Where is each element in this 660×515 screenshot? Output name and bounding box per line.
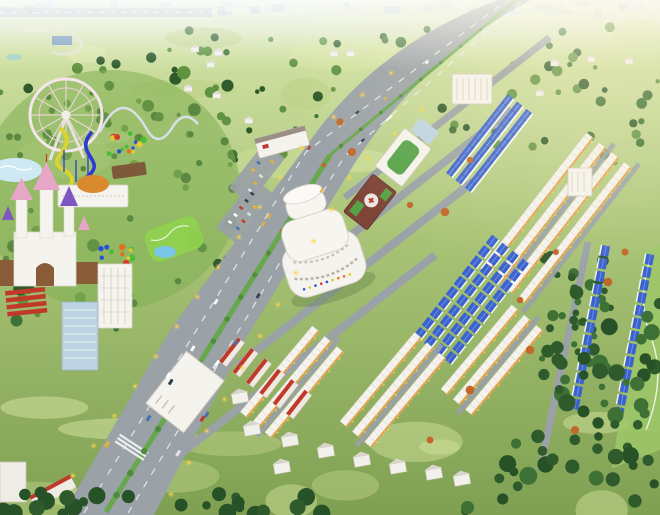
carousel-part: [129, 248, 133, 252]
forest-tree: [640, 408, 650, 418]
forest-tree: [461, 501, 474, 514]
forest-tree: [606, 472, 620, 486]
tree: [569, 316, 578, 325]
forest-tree: [650, 479, 659, 488]
forest-tree: [547, 453, 559, 465]
forest-tree: [509, 467, 518, 476]
median-tree: [266, 250, 271, 255]
forest-tree: [592, 363, 608, 379]
play-equipment: [140, 137, 146, 143]
street-light: [134, 385, 136, 387]
street-light: [170, 493, 172, 495]
forest-tree: [601, 318, 618, 335]
castle-tower: [16, 198, 27, 238]
tree: [560, 375, 570, 385]
forest-tree: [594, 432, 603, 441]
median-tree: [238, 294, 243, 299]
tree: [570, 286, 584, 300]
street-light: [279, 176, 281, 178]
wheel-hub: [62, 111, 71, 120]
field-patch: [312, 470, 379, 500]
median-tree: [127, 470, 134, 477]
play-equipment: [134, 141, 137, 144]
street-light: [206, 430, 208, 432]
median-tree: [252, 272, 257, 277]
street-light: [241, 367, 243, 369]
street-light: [259, 335, 261, 337]
tent-wall: [245, 119, 253, 124]
street-light: [113, 415, 115, 417]
street-light: [217, 266, 219, 268]
autumn-tree: [526, 346, 534, 354]
street-light: [312, 240, 314, 242]
forest-tree: [565, 460, 579, 474]
swimming-pool: [154, 246, 176, 258]
tree: [19, 489, 31, 501]
tree: [574, 298, 581, 305]
tree: [23, 84, 33, 94]
scene-svg: [0, 0, 660, 515]
tree: [11, 315, 23, 327]
tree: [572, 324, 579, 331]
tree: [212, 487, 226, 501]
street-light: [330, 208, 332, 210]
forest-tree: [600, 399, 608, 407]
tree: [600, 303, 609, 312]
carousel-part: [126, 256, 130, 260]
tree: [217, 112, 225, 120]
play-equipment: [117, 149, 121, 153]
carousel-part: [120, 252, 124, 256]
aerial-render-canvas: [0, 0, 660, 515]
forest-tree: [592, 417, 603, 428]
forest-tree: [643, 455, 654, 466]
glass-residential-tower: [62, 302, 98, 370]
tree: [79, 497, 88, 506]
forest-tree: [519, 467, 537, 485]
forest-tree: [644, 324, 660, 340]
carousel-part: [104, 245, 109, 250]
forest-tree: [578, 352, 591, 365]
tree: [546, 324, 554, 332]
forest-tree: [629, 461, 638, 470]
tree: [35, 487, 47, 499]
forest-tree: [579, 370, 588, 379]
tree: [599, 384, 606, 391]
tree: [202, 501, 211, 510]
median-tree: [210, 338, 216, 344]
street-light: [238, 236, 240, 238]
forest-tree: [555, 385, 564, 394]
castle-gate: [36, 263, 54, 286]
autumn-tree: [571, 426, 579, 434]
play-equipment: [125, 145, 129, 149]
tree: [555, 357, 568, 370]
autumn-tree: [517, 297, 524, 304]
glass-tower-body: [62, 302, 98, 370]
forest-tree: [641, 311, 653, 323]
forest-tree: [608, 449, 624, 465]
castle-wall-left: [0, 260, 14, 286]
street-light: [188, 462, 190, 464]
street-light: [223, 398, 225, 400]
tower-body: [98, 264, 132, 328]
field-patch: [0, 396, 88, 418]
tree: [246, 127, 252, 133]
carousel-part: [98, 246, 104, 252]
forest-tree: [578, 406, 590, 418]
forest-tree: [513, 481, 523, 491]
street-light: [72, 474, 74, 476]
forest-tree: [630, 377, 644, 391]
tent-wall: [213, 94, 221, 99]
forest-tree: [628, 494, 641, 507]
street-light: [258, 206, 260, 208]
tree: [279, 106, 286, 113]
forest-tree: [623, 379, 630, 386]
tree: [259, 86, 265, 92]
street-light: [196, 296, 198, 298]
tree: [547, 310, 558, 321]
tree: [221, 80, 233, 92]
hotel-dome: [77, 175, 109, 193]
tree: [538, 369, 549, 380]
forest-tree: [558, 394, 575, 411]
forest-tree: [592, 443, 603, 454]
tree: [539, 356, 545, 362]
forest-tree: [494, 473, 504, 483]
tree: [175, 499, 188, 512]
forest-tree: [497, 493, 508, 504]
autumn-tree: [466, 386, 475, 395]
play-equipment: [131, 146, 134, 149]
forest-tree: [589, 471, 604, 486]
tree: [59, 490, 75, 506]
tree: [290, 499, 306, 515]
castle-tower: [64, 202, 74, 236]
forest-tree: [622, 447, 639, 464]
tree: [235, 503, 244, 512]
carousel-part: [109, 249, 114, 254]
tree: [541, 345, 554, 358]
forest-tree: [610, 420, 619, 429]
tree: [122, 490, 135, 503]
tree: [601, 288, 608, 295]
tree: [558, 312, 566, 320]
street-light: [277, 303, 279, 305]
castle-tower: [40, 186, 53, 238]
median-tree: [155, 426, 161, 432]
tree: [571, 341, 577, 347]
median-tree: [224, 316, 229, 321]
street-light: [300, 147, 302, 149]
forest-tree: [538, 446, 548, 456]
play-equipment: [127, 149, 132, 154]
tree: [572, 310, 579, 317]
tree: [255, 89, 260, 94]
forest-tree: [570, 434, 581, 445]
play-equipment: [131, 150, 135, 154]
carousel-part: [122, 245, 126, 249]
street-light: [295, 272, 297, 274]
tree: [89, 489, 101, 501]
white-residential-tower: [98, 264, 132, 328]
tree: [212, 84, 219, 91]
median-tree: [113, 492, 120, 499]
forest-tree: [633, 420, 643, 430]
forest-tree: [608, 364, 625, 381]
carousel-part: [100, 255, 104, 259]
autumn-tree: [427, 437, 434, 444]
median-tree: [141, 448, 147, 454]
street-light: [93, 445, 95, 447]
castle-wall-right: [76, 262, 98, 284]
street-light: [155, 355, 157, 357]
play-equipment: [128, 131, 133, 136]
play-equipment: [114, 134, 120, 140]
play-equipment: [107, 151, 112, 156]
forest-tree: [646, 360, 655, 369]
forest-tree: [511, 438, 521, 448]
street-light: [176, 325, 178, 327]
forest-tree: [531, 430, 545, 444]
tent-wall: [184, 87, 192, 92]
